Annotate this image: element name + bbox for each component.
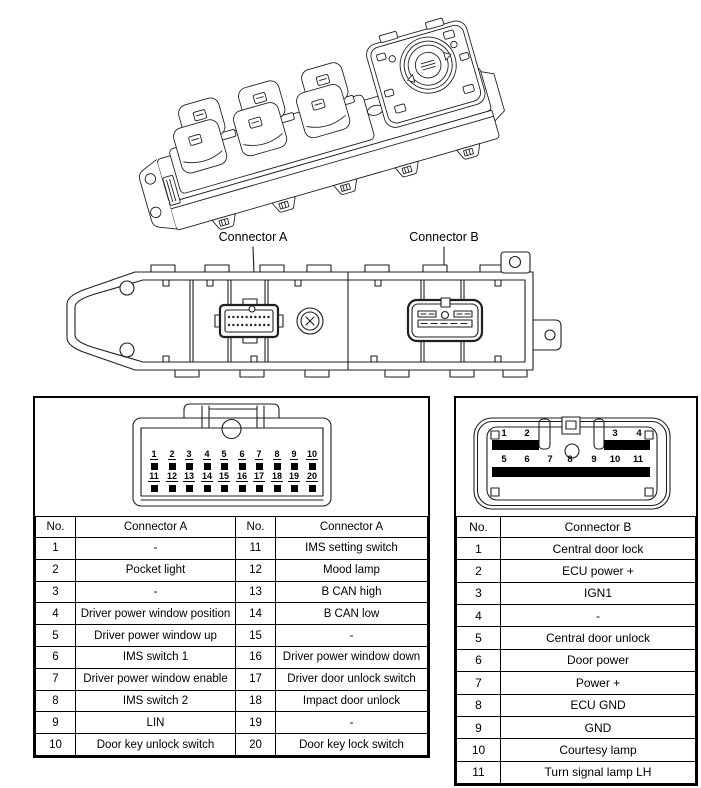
pin-a-14: 14 [198,466,216,492]
table-row: 4- [457,605,696,627]
pin-b-6: 6 [519,454,535,465]
pin-a-12: 12 [163,466,181,492]
pin-a-15: 15 [215,466,233,492]
table-row: 7Power + [457,672,696,694]
pin-a-16: 16 [233,466,251,492]
pin-square [309,485,316,492]
pin-b-10: 10 [607,454,623,465]
table-row: 10Courtesy lamp [457,739,696,761]
pin-b-11: 11 [630,454,646,465]
pin-square [239,485,246,492]
connector-b-pin-diagram: 1 2 3 4 5 6 7 8 9 10 11 [456,398,696,516]
connector-a-table: No. Connector A No. Connector A 1-11IMS … [35,516,428,756]
bottom-view-drawing [55,228,615,392]
col-header: Connector B [501,517,696,538]
connector-b-receptacle [408,298,482,341]
pin-a-17: 17 [250,466,268,492]
col-header: Connector A [76,517,236,538]
pin-b-9: 9 [586,454,602,465]
table-row: 2ECU power + [457,560,696,582]
pin-square [291,485,298,492]
pin-a-18: 18 [268,466,286,492]
table-row: 6IMS switch 116Driver power window down [36,646,428,668]
table-header-row: No. Connector B [457,517,696,538]
table-row: 2Pocket light12Mood lamp [36,559,428,581]
pin-b-8: 8 [562,454,578,465]
pin-b-7: 7 [542,454,558,465]
screw-boss [297,308,323,334]
col-header: No. [36,517,76,538]
table-header-row: No. Connector A No. Connector A [36,517,428,538]
pin-b-4: 4 [631,428,647,439]
pin-square [186,485,193,492]
pin-a-20: 20 [303,466,321,492]
connector-b-pinout-box: 1 2 3 4 5 6 7 8 9 10 11 No. Connector B … [454,396,698,786]
table-row: 1Central door lock [457,538,696,560]
table-row: 3IGN1 [457,582,696,604]
table-row: 5Central door unlock [457,627,696,649]
pin-square [274,485,281,492]
pin-b-3: 3 [607,428,623,439]
pin-square [204,485,211,492]
connector-b-table: No. Connector B 1Central door lock 2ECU … [456,516,696,784]
connector-a-pinout-box: 1 2 3 4 5 6 7 8 9 10 11 12 13 14 15 16 1… [33,396,430,758]
pin-square [256,485,263,492]
table-row: 5Driver power window up15- [36,625,428,647]
iso-view-drawing [55,0,655,252]
table-row: 6Door power [457,649,696,671]
pin-b-5: 5 [496,454,512,465]
table-row: 1-11IMS setting switch [36,538,428,560]
table-row: 8ECU GND [457,694,696,716]
pin-b-1: 1 [496,428,512,439]
pin-a-13: 13 [180,466,198,492]
pin-square [169,485,176,492]
connector-a-pin-diagram: 1 2 3 4 5 6 7 8 9 10 11 12 13 14 15 16 1… [35,398,428,516]
col-header: No. [457,517,501,538]
table-row: 9GND [457,716,696,738]
table-row: 8IMS switch 218Impact door unlock [36,690,428,712]
table-row: 11Turn signal lamp LH [457,761,696,783]
table-row: 4Driver power window position14B CAN low [36,603,428,625]
table-row: 10Door key unlock switch20Door key lock … [36,734,428,756]
pin-b-2: 2 [519,428,535,439]
pin-square [151,485,158,492]
connector-a-receptacle [215,299,283,343]
col-header: No. [236,517,276,538]
pin-a-19: 19 [285,466,303,492]
pin-a-11: 11 [145,466,163,492]
table-row: 3-13B CAN high [36,581,428,603]
pin-square [221,485,228,492]
table-row: 9LIN19- [36,712,428,734]
col-header: Connector A [276,517,428,538]
service-manual-figure: Connector A Connector B [0,0,701,788]
table-row: 7Driver power window enable17Driver door… [36,668,428,690]
